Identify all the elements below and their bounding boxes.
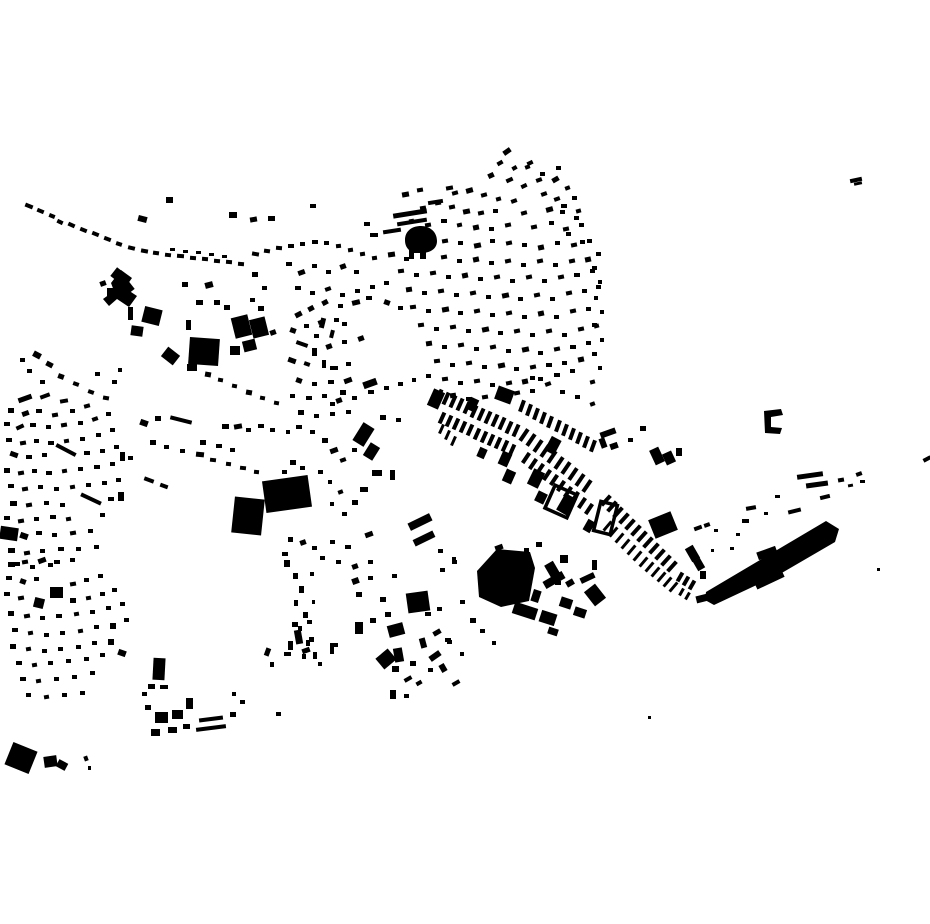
building-footprint [445, 415, 454, 428]
building-footprint [676, 448, 682, 456]
building-footprint [276, 246, 282, 250]
building-footprint [340, 293, 345, 297]
building-footprint [145, 705, 151, 710]
building-footprint [656, 571, 666, 582]
building-footprint [589, 401, 595, 406]
building-footprint [104, 236, 112, 242]
building-footprint [406, 591, 431, 614]
building-footprint [141, 306, 162, 326]
building-footprint [321, 299, 329, 306]
building-footprint [596, 285, 601, 289]
building-footprint [562, 333, 567, 337]
building-footprint [648, 511, 678, 539]
building-footprint [40, 549, 45, 553]
building-footprint [186, 320, 191, 330]
building-footprint [465, 187, 473, 194]
building-footprint [505, 258, 512, 263]
building-footprint [342, 340, 347, 344]
building-footprint [360, 487, 368, 492]
building-footprint [288, 641, 293, 650]
building-footprint [70, 582, 77, 587]
building-footprint [563, 226, 570, 231]
building-footprint [153, 251, 159, 256]
building-footprint [84, 578, 89, 582]
building-footprint [458, 241, 463, 245]
building-footprint [586, 307, 591, 311]
building-footprint [512, 602, 539, 621]
building-footprint [592, 560, 597, 570]
building-footprint [25, 203, 34, 210]
building-footprint [21, 410, 29, 417]
building-footprint [650, 566, 660, 577]
building-footprint [596, 252, 601, 256]
building-footprint [100, 513, 105, 517]
building-footprint [304, 324, 309, 328]
building-footprint [58, 647, 63, 651]
building-footprint [250, 216, 258, 222]
building-footprint [295, 377, 302, 384]
building-footprint [128, 245, 136, 251]
building-footprint [301, 647, 310, 654]
building-footprint [340, 390, 346, 395]
building-footprint [4, 468, 10, 473]
building-footprint [574, 273, 580, 277]
building-footprint [70, 531, 77, 536]
building-footprint [456, 398, 465, 412]
building-footprint [364, 222, 370, 226]
building-footprint [218, 378, 224, 383]
building-footprint [307, 620, 312, 624]
building-footprint [554, 420, 562, 433]
building-footprint [575, 432, 583, 445]
building-footprint [60, 631, 65, 635]
building-footprint [205, 372, 212, 378]
building-footprint [688, 580, 696, 591]
building-footprint [339, 263, 346, 270]
building-footprint [577, 497, 587, 509]
building-footprint [442, 306, 450, 312]
building-footprint [404, 257, 409, 261]
building-footprint [34, 517, 39, 521]
building-footprint [99, 280, 106, 287]
building-footprint [112, 380, 117, 384]
building-footprint [407, 513, 432, 531]
building-footprint [618, 512, 630, 524]
building-footprint [460, 600, 465, 604]
building-footprint [530, 364, 537, 369]
building-footprint [330, 402, 335, 406]
building-footprint [87, 389, 94, 395]
building-footprint [474, 379, 481, 384]
building-footprint [354, 270, 359, 274]
building-footprint [50, 587, 63, 598]
building-footprint [578, 356, 585, 362]
building-footprint [526, 274, 533, 279]
building-footprint [345, 545, 351, 549]
building-footprint [547, 627, 559, 637]
building-footprint [363, 442, 380, 461]
building-footprint [614, 532, 624, 543]
building-footprint [70, 485, 76, 490]
building-footprint [449, 204, 456, 209]
building-footprint [231, 314, 253, 338]
building-footprint [44, 633, 49, 637]
building-footprint [268, 216, 275, 221]
building-footprint [554, 346, 561, 351]
building-footprint [231, 497, 265, 536]
building-footprint [438, 412, 447, 425]
building-footprint [538, 244, 545, 250]
building-footprint [564, 185, 570, 190]
building-footprint [501, 440, 510, 453]
building-footprint [342, 322, 347, 326]
building-footprint [574, 216, 579, 220]
building-footprint [325, 343, 332, 350]
building-footprint [573, 606, 587, 618]
building-footprint [295, 286, 301, 290]
building-footprint [364, 531, 373, 538]
building-footprint [94, 545, 99, 549]
building-footprint [37, 557, 46, 564]
building-footprint [579, 572, 595, 584]
building-footprint [546, 363, 552, 367]
building-footprint [306, 396, 312, 400]
building-footprint [78, 629, 84, 634]
building-footprint [730, 547, 734, 550]
building-footprint [539, 412, 547, 425]
building-footprint [466, 424, 475, 437]
building-footprint [322, 394, 327, 398]
building-footprint [561, 204, 567, 208]
building-footprint [282, 470, 287, 474]
building-footprint [222, 255, 227, 258]
building-footprint [528, 458, 538, 470]
building-footprint [78, 421, 83, 425]
building-footprint [298, 410, 304, 415]
building-footprint [56, 219, 63, 225]
building-footprint [117, 649, 127, 657]
building-footprint [820, 494, 831, 500]
building-footprint [348, 248, 354, 253]
building-footprint [289, 327, 296, 334]
building-footprint [458, 343, 465, 348]
building-footprint [230, 448, 235, 452]
building-footprint [346, 362, 351, 366]
building-footprint [172, 710, 183, 719]
building-footprint [92, 231, 100, 237]
building-footprint [412, 378, 416, 382]
building-footprint [438, 663, 447, 673]
building-footprint [258, 306, 264, 311]
building-footprint [460, 652, 464, 656]
building-footprint [42, 649, 47, 653]
building-footprint [449, 395, 458, 409]
building-footprint [76, 547, 81, 551]
building-footprint [293, 573, 298, 579]
building-footprint [684, 592, 691, 600]
building-footprint [511, 165, 517, 171]
building-footprint [299, 586, 304, 593]
building-footprint [0, 526, 19, 541]
building-footprint [170, 415, 192, 424]
building-footprint [550, 297, 555, 301]
building-footprint [199, 716, 223, 723]
building-footprint [144, 476, 155, 483]
building-footprint [284, 652, 291, 656]
building-footprint [276, 712, 281, 716]
building-footprint [383, 228, 401, 235]
building-footprint [566, 232, 571, 236]
building-footprint [128, 456, 133, 460]
building-footprint [362, 378, 378, 389]
building-footprint [312, 264, 317, 268]
building-footprint [434, 359, 440, 364]
building-footprint [55, 443, 76, 457]
building-footprint [676, 572, 684, 583]
building-footprint [300, 466, 305, 470]
building-footprint [410, 661, 416, 666]
building-footprint [26, 503, 33, 508]
building-footprint [555, 241, 560, 245]
building-footprint [368, 390, 374, 394]
building-footprint [26, 693, 31, 697]
building-footprint [196, 251, 201, 254]
building-footprint [530, 333, 535, 337]
building-footprint [417, 188, 424, 193]
building-footprint [551, 176, 560, 184]
building-footprint [62, 693, 67, 697]
building-footprint [190, 256, 196, 260]
building-footprint [288, 244, 294, 248]
building-footprint [384, 386, 389, 390]
building-footprint [566, 290, 573, 295]
building-footprint [414, 273, 419, 277]
building-footprint [662, 450, 676, 465]
building-footprint [544, 381, 551, 387]
building-footprint [250, 298, 255, 302]
building-footprint [490, 239, 495, 243]
building-footprint [50, 515, 56, 519]
building-footprint [536, 542, 542, 547]
building-footprint [352, 500, 358, 505]
building-footprint [440, 568, 445, 572]
building-footprint [209, 253, 214, 256]
building-footprint [457, 259, 462, 263]
building-footprint [98, 574, 103, 578]
building-footprint [222, 424, 229, 429]
building-footprint [474, 242, 482, 248]
building-footprint [355, 289, 360, 293]
building-footprint [270, 428, 275, 432]
building-footprint [383, 299, 390, 306]
building-footprint [565, 578, 575, 587]
building-footprint [521, 263, 526, 267]
building-footprint [238, 262, 244, 266]
building-footprint [522, 243, 527, 247]
building-footprint [736, 533, 740, 536]
building-footprint [554, 315, 559, 319]
building-footprint [54, 560, 60, 564]
building-footprint [415, 680, 422, 686]
building-footprint [462, 272, 469, 278]
building-footprint [80, 227, 88, 233]
building-footprint [537, 258, 544, 263]
building-footprint [310, 204, 316, 208]
building-footprint [54, 487, 59, 491]
building-footprint [120, 602, 125, 606]
building-footprint [330, 412, 335, 416]
building-footprint [586, 341, 591, 345]
building-footprint [4, 592, 10, 596]
building-footprint [284, 560, 290, 567]
building-footprint [372, 256, 378, 261]
building-footprint [492, 641, 496, 645]
building-footprint [578, 326, 585, 331]
building-footprint [34, 577, 39, 581]
building-footprint [452, 418, 461, 431]
building-footprint [224, 305, 230, 310]
building-footprint [482, 395, 489, 400]
building-footprint [310, 430, 315, 434]
building-footprint [490, 383, 495, 387]
building-footprint [434, 327, 439, 331]
building-footprint [292, 622, 298, 627]
building-footprint [234, 423, 243, 429]
building-footprint [521, 210, 528, 215]
building-footprint [487, 172, 495, 179]
building-footprint [288, 537, 293, 542]
building-footprint [152, 658, 165, 681]
building-footprint [48, 441, 54, 445]
building-footprint [116, 478, 121, 482]
building-footprint [489, 261, 494, 265]
building-footprint [567, 467, 578, 481]
building-footprint [30, 423, 36, 427]
building-footprint [270, 662, 274, 667]
building-footprint [306, 640, 310, 646]
building-footprint [775, 495, 780, 498]
building-footprint [419, 637, 427, 648]
building-footprint [100, 449, 105, 453]
building-footprint [366, 296, 372, 300]
building-footprint [83, 755, 88, 761]
building-footprint [61, 423, 68, 428]
building-footprint [592, 352, 597, 356]
building-footprint [538, 377, 543, 381]
building-footprint [8, 562, 15, 567]
building-footprint [20, 677, 26, 681]
building-footprint [587, 239, 592, 243]
building-footprint [404, 694, 409, 698]
building-footprint [80, 691, 85, 695]
building-footprint [380, 415, 386, 420]
building-footprint [196, 452, 204, 458]
building-footprint [426, 374, 431, 378]
building-footprint [170, 248, 175, 251]
building-footprint [286, 430, 290, 434]
building-footprint [120, 452, 125, 461]
building-footprint [37, 208, 45, 214]
building-footprint [60, 503, 65, 507]
building-footprint [72, 381, 79, 387]
building-footprint [370, 618, 376, 623]
building-footprint [10, 644, 16, 649]
building-footprint [187, 364, 197, 371]
building-footprint [249, 316, 269, 338]
building-footprint [346, 410, 351, 414]
building-footprint [426, 309, 431, 313]
building-footprint [297, 269, 305, 276]
building-footprint [560, 461, 571, 475]
building-footprint [450, 436, 457, 446]
building-footprint [510, 279, 515, 283]
building-footprint [402, 191, 410, 197]
building-footprint [396, 418, 401, 422]
building-footprint [329, 447, 338, 454]
building-footprint [264, 249, 270, 254]
building-footprint [252, 251, 260, 256]
building-footprint [458, 381, 463, 385]
building-footprint [32, 663, 38, 668]
building-footprint [518, 428, 529, 442]
building-footprint [714, 529, 718, 532]
building-footprint [48, 563, 53, 567]
building-footprint [166, 197, 173, 203]
building-footprint [632, 550, 642, 561]
building-footprint [232, 384, 238, 389]
building-footprint [418, 323, 424, 328]
building-footprint [4, 422, 10, 426]
building-footprint [294, 600, 298, 606]
building-footprint [287, 357, 296, 364]
building-footprint [351, 577, 360, 585]
building-footprint [30, 565, 35, 569]
building-footprint [66, 517, 72, 522]
building-footprint [60, 398, 69, 403]
building-footprint [290, 460, 296, 465]
building-footprint [450, 363, 455, 367]
building-footprint [150, 440, 156, 445]
building-footprint [600, 338, 604, 342]
building-footprint [103, 396, 110, 401]
building-footprint [196, 724, 226, 732]
building-footprint [141, 248, 149, 253]
building-footprint [535, 177, 542, 183]
building-footprint [628, 438, 633, 442]
building-footprint [102, 481, 107, 485]
building-footprint [494, 274, 501, 279]
building-footprint [442, 345, 447, 349]
building-footprint [52, 413, 59, 418]
building-footprint [335, 397, 342, 404]
building-footprint [532, 439, 543, 453]
building-footprint [644, 561, 654, 572]
building-footprint [506, 240, 513, 245]
building-footprint [70, 558, 75, 562]
building-footprint [84, 657, 89, 661]
building-footprint [668, 581, 678, 592]
building-footprint [466, 361, 473, 366]
building-footprint [569, 258, 576, 263]
building-footprint [40, 380, 45, 384]
building-footprint [524, 548, 529, 552]
building-footprint [746, 505, 757, 511]
building-footprint [19, 578, 26, 585]
building-footprint [96, 433, 101, 437]
building-footprint [581, 479, 592, 493]
building-footprint [598, 437, 607, 448]
building-footprint [352, 448, 357, 452]
